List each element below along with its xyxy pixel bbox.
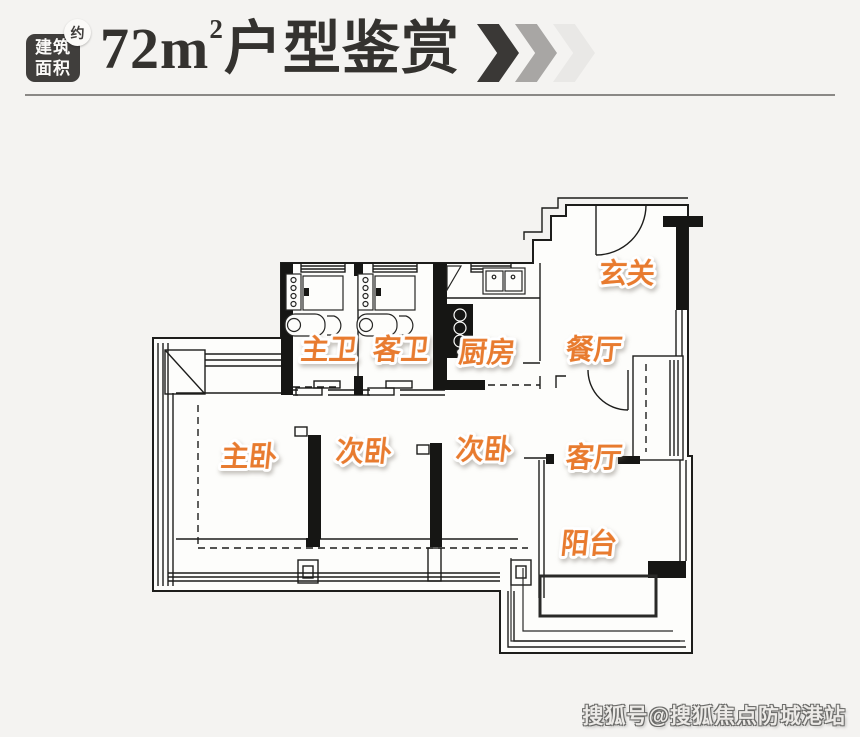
approx-badge: 约 bbox=[64, 19, 91, 46]
title-superscript: 2 bbox=[209, 16, 224, 43]
title-text: 户型鉴赏 bbox=[224, 18, 460, 80]
room-label-balcony: 阳台 bbox=[559, 527, 618, 559]
room-label-dining: 餐厅 bbox=[564, 334, 623, 365]
page: { "header": { "area_badge": { "line1": "… bbox=[0, 0, 860, 737]
header-divider bbox=[25, 94, 835, 96]
room-label-master-bath: 主卫 bbox=[299, 334, 358, 365]
title-chevrons bbox=[477, 24, 591, 82]
title-number: 72m bbox=[100, 18, 209, 80]
room-label-living-room: 客厅 bbox=[564, 441, 623, 473]
chevron-icon bbox=[477, 24, 519, 82]
room-label-guest-bath: 客卫 bbox=[371, 333, 430, 365]
approx-text: 约 bbox=[71, 23, 85, 43]
room-label-bedroom-2: 次卧 bbox=[334, 436, 393, 467]
watermark: 搜狐号@搜狐焦点防城港站 bbox=[583, 700, 846, 730]
floor-plan: 玄关 主卫 客卫 厨房 餐厅 主卧 次卧 次卧 客厅 阳台 bbox=[146, 186, 734, 662]
room-label-bedroom-3: 次卧 bbox=[454, 434, 513, 465]
chevron-icon bbox=[515, 24, 557, 82]
room-label-master-bedroom: 主卧 bbox=[219, 441, 278, 472]
room-label-kitchen: 厨房 bbox=[457, 336, 516, 368]
area-badge-line2: 面积 bbox=[35, 58, 71, 79]
chevron-icon bbox=[553, 24, 595, 82]
page-title: 72m2户型鉴赏 bbox=[100, 18, 460, 84]
room-label-entry: 玄关 bbox=[597, 257, 656, 289]
watermark-text: 搜狐号@搜狐焦点防城港站 bbox=[583, 705, 846, 728]
